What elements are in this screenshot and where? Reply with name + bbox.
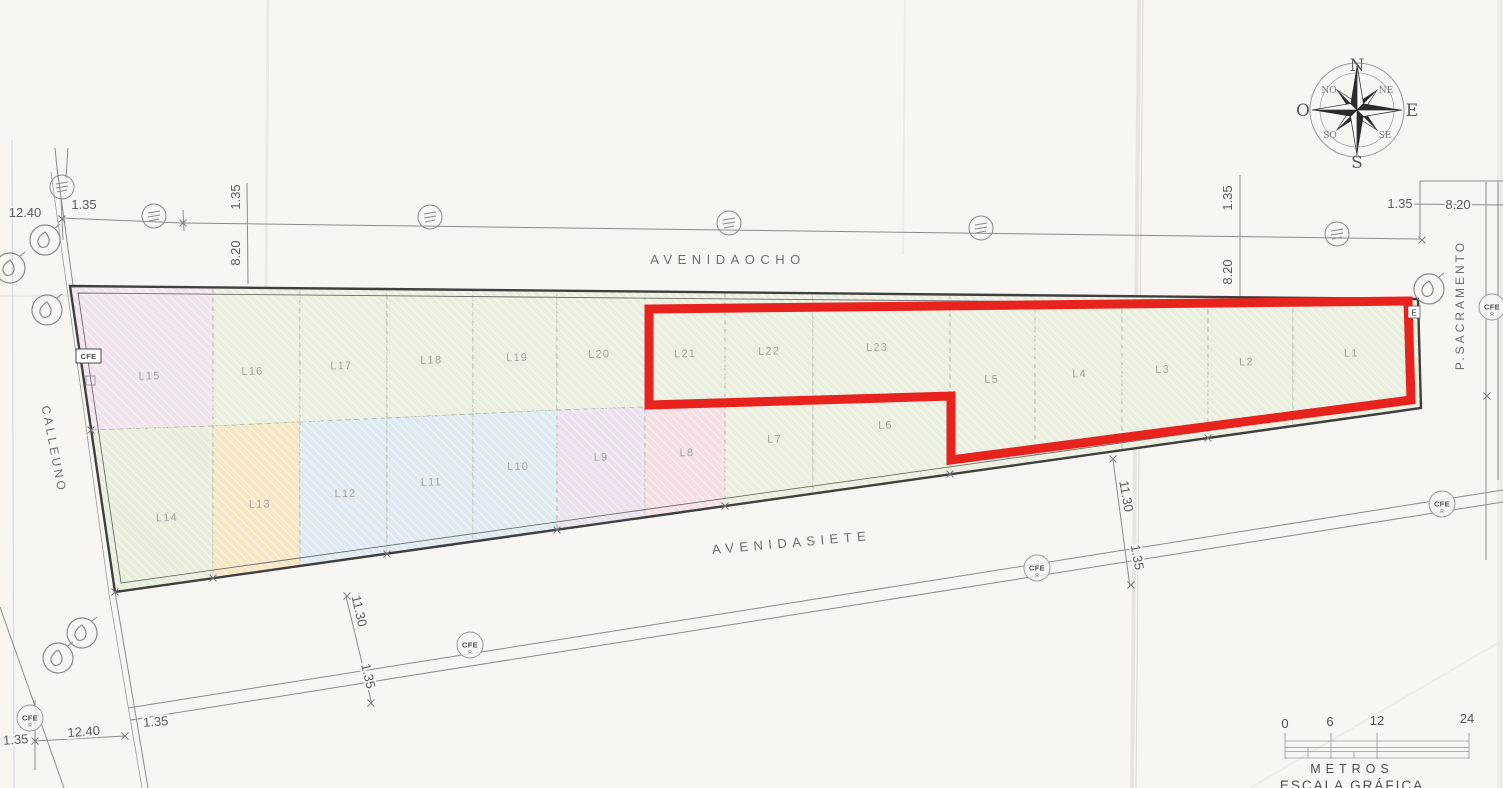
compass-s: S — [1351, 153, 1363, 173]
lot-label: L15 — [138, 370, 160, 382]
corner-point-label: E — [1411, 309, 1416, 318]
lot-label: L12 — [335, 488, 357, 500]
lot-label: L1 — [1344, 347, 1359, 359]
lot-label: L8 — [679, 447, 694, 459]
lot-label: L7 — [767, 433, 782, 445]
compass-e: E — [1406, 101, 1418, 121]
compass-no: NO — [1321, 86, 1336, 96]
lot-label: L9 — [594, 451, 609, 463]
dim-1-35: 1.35 — [358, 662, 378, 690]
lot-label: L13 — [249, 498, 271, 510]
compass-se: SE — [1379, 131, 1392, 141]
scanned-lot-plan: CFE R — [0, 0, 1503, 788]
lot-label: L2 — [1239, 356, 1254, 368]
dim-1-35: 1.35 — [143, 713, 169, 730]
lot-label: L23 — [866, 342, 888, 354]
compass-o: O — [1296, 101, 1310, 121]
lot-label: L11 — [421, 476, 442, 488]
dim-11-30: 11.30 — [349, 594, 371, 628]
street-label-avenida-siete: AVENIDASIETE — [711, 528, 871, 557]
lot-l6[interactable] — [813, 393, 950, 494]
lot-l14[interactable] — [91, 426, 213, 592]
scale-caption: ESCALA GRÁFICA — [1280, 778, 1424, 788]
dim-8-20: 8.20 — [1445, 197, 1470, 212]
street-label-sacramento: P.SACRAMENTO — [1453, 240, 1467, 370]
street-label-calle-uno: CALLEUNO — [39, 404, 70, 494]
scale-units-label: METROS — [1310, 762, 1393, 776]
compass-rose: N S E O NE NO SE SO — [1296, 56, 1418, 173]
lot-l17[interactable] — [300, 288, 387, 422]
dim-1-35: 1.35 — [228, 184, 243, 209]
dim-8-20: 8.20 — [228, 240, 243, 265]
scale-tick-24: 24 — [1460, 711, 1474, 726]
scale-tick-0: 0 — [1281, 716, 1288, 731]
dim-1-35: 1.35 — [1128, 543, 1147, 571]
compass-so: SO — [1323, 131, 1337, 141]
scale-tick-6: 6 — [1326, 714, 1333, 729]
dim-12-40-top: 12.40 — [9, 205, 42, 220]
lot-label: L6 — [878, 420, 893, 432]
lot-label: L17 — [330, 360, 352, 372]
lot-label: L14 — [156, 512, 178, 524]
compass-star-cardinal — [1312, 65, 1402, 155]
lot-label: L10 — [507, 461, 529, 473]
dim-1-35: 1.35 — [1387, 196, 1412, 211]
site-plan-svg: CFE R — [0, 0, 1503, 788]
lot-label: L20 — [588, 348, 610, 360]
lot-label: L3 — [1155, 364, 1170, 376]
dim-8-20: 8.20 — [1220, 259, 1235, 284]
lot-l18[interactable] — [387, 289, 473, 418]
corner-point-marker: E — [1408, 306, 1420, 318]
scale-tick-12: 12 — [1370, 713, 1384, 728]
lot-l16[interactable] — [213, 287, 300, 426]
lot-label: L16 — [241, 365, 263, 377]
compass-n: N — [1350, 56, 1365, 76]
dim-12-40-bottom: 12.40 — [67, 723, 101, 740]
lot-label: L19 — [506, 352, 528, 364]
lot-label: L18 — [420, 354, 442, 366]
dim-1-35: 1.35 — [1220, 185, 1235, 210]
lot-l7[interactable] — [725, 399, 813, 506]
lot-label: L22 — [758, 345, 780, 357]
scale-bar-lines — [1285, 733, 1469, 759]
lot-label: L4 — [1072, 368, 1087, 380]
dim-1-35: 1.35 — [3, 731, 29, 748]
street-label-avenida-ocho: AVENIDAOCHO — [650, 252, 806, 267]
compass-ne: NE — [1379, 86, 1393, 96]
cfe-label: CFE — [81, 352, 97, 361]
lot-label: L5 — [984, 374, 999, 386]
graphic-scale: 0 6 12 24 METROS ESCALA GRÁFICA — [1280, 711, 1474, 788]
dim-1-35: 1.35 — [71, 197, 96, 212]
lot-l10[interactable] — [473, 410, 557, 542]
lot-label: L21 — [674, 348, 696, 360]
